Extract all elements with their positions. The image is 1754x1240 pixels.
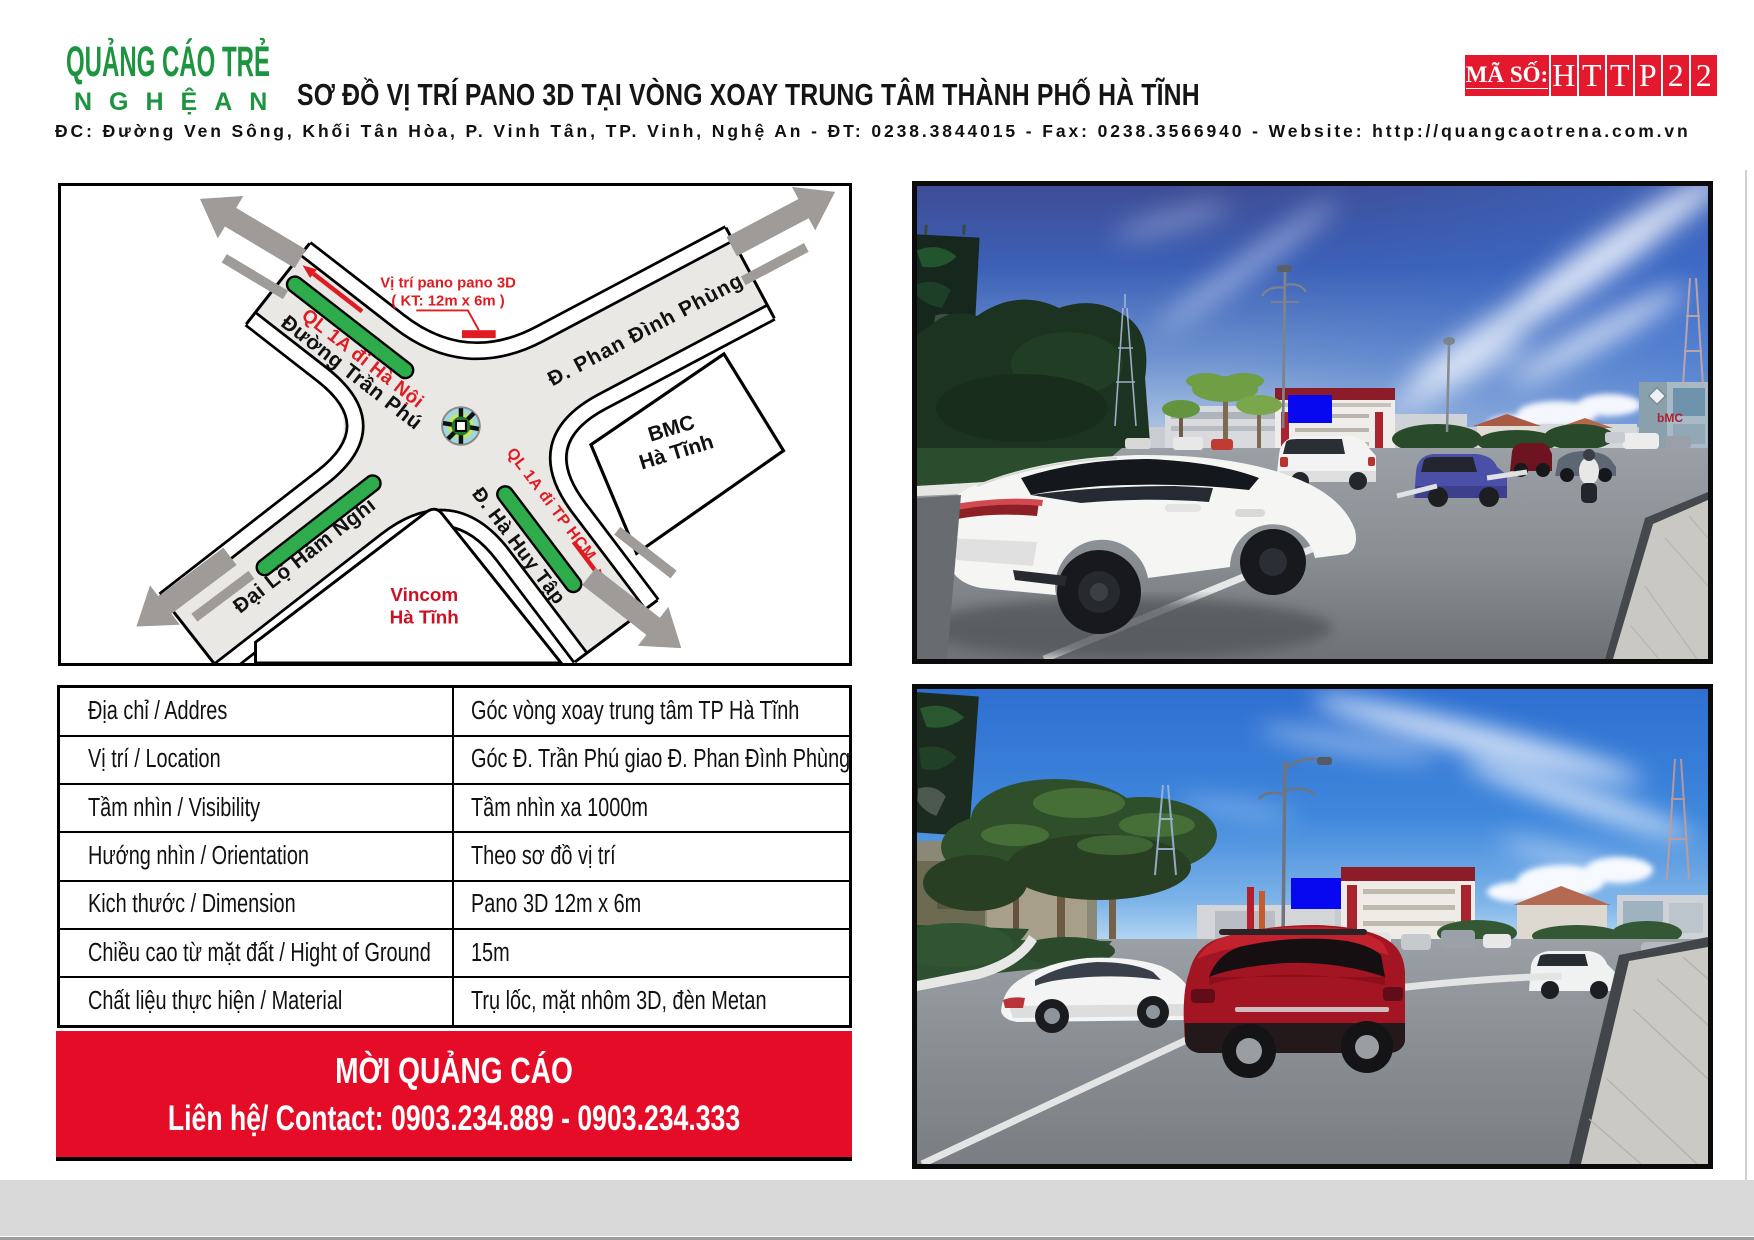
svg-text:Vincom: Vincom	[390, 584, 458, 605]
svg-text:bMC: bMC	[1657, 411, 1683, 425]
svg-text:Vị trí pano pano 3D: Vị trí pano pano 3D	[380, 276, 516, 292]
svg-text:( KT: 12m x 6m ): ( KT: 12m x 6m )	[391, 294, 504, 310]
svg-text:Hà Tĩnh: Hà Tĩnh	[390, 607, 459, 628]
